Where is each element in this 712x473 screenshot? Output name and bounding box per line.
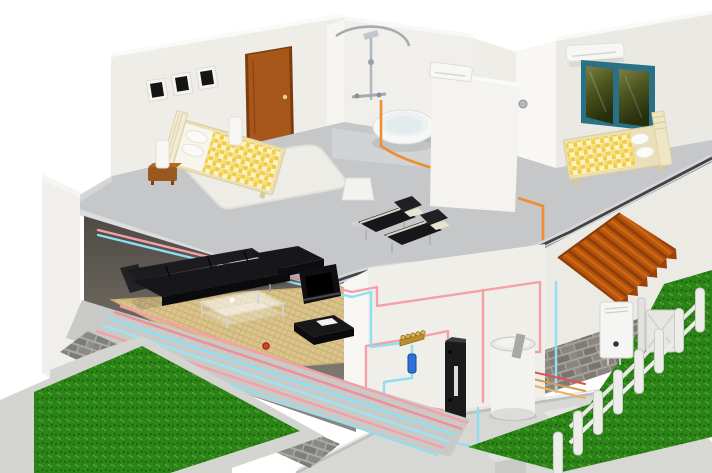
- wall-boiler: [600, 302, 633, 365]
- bedside-lamp: [229, 117, 242, 145]
- fence-picket: [574, 411, 583, 455]
- bedside-lamp: [156, 140, 169, 168]
- fence-picket: [675, 309, 684, 353]
- fence-picket: [635, 350, 644, 394]
- hallway-partition: [429, 62, 527, 212]
- red-shutoff-valve: [263, 343, 269, 349]
- fence-picket: [614, 370, 623, 414]
- window: [581, 60, 655, 131]
- fence-picket: [696, 288, 705, 332]
- fence-picket: [554, 432, 563, 473]
- picture-frame: [146, 78, 168, 102]
- wall-mixer-valve: [519, 100, 527, 108]
- door-knob: [283, 95, 287, 99]
- gate-post: [638, 298, 645, 352]
- hot-water-tank: [489, 333, 537, 421]
- picture-frame: [171, 72, 193, 96]
- picture-frame: [196, 66, 218, 90]
- bedroom-door: [245, 46, 294, 151]
- heat-pump-unit: [445, 337, 466, 419]
- zone-valve: [408, 354, 416, 373]
- scene-canvas: [0, 0, 712, 473]
- house-cutaway-illustration: [0, 0, 712, 473]
- fence-picket: [655, 329, 664, 373]
- fence-picket: [594, 391, 603, 435]
